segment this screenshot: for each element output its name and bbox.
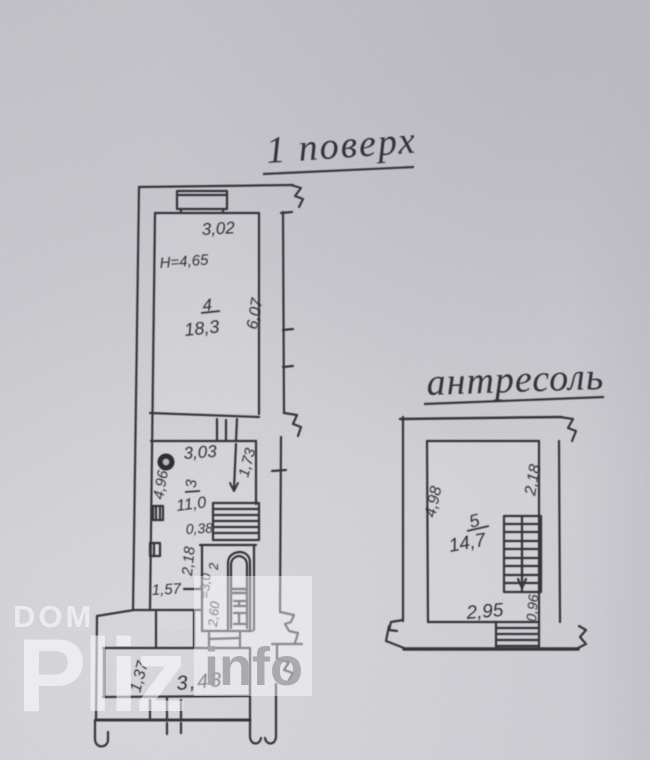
svg-text:18,3: 18,3 [183,316,220,340]
svg-text:11,0: 11,0 [175,494,207,515]
svg-text:3: 3 [183,479,200,489]
svg-text:Pliz: Pliz [17,618,184,734]
svg-text:1,57: 1,57 [151,580,182,599]
svg-text:2: 2 [206,562,221,571]
svg-text:info: info [204,637,303,697]
svg-text:2,18: 2,18 [179,545,199,577]
svg-text:2,95: 2,95 [465,600,505,624]
svg-text:3,02: 3,02 [201,218,236,239]
svg-text:Н=4,65: Н=4,65 [159,252,210,272]
svg-text:0,96: 0,96 [523,594,541,623]
svg-text:антресоль: антресоль [426,356,605,404]
svg-text:0,38: 0,38 [185,520,213,537]
svg-text:3,03: 3,03 [183,442,218,463]
